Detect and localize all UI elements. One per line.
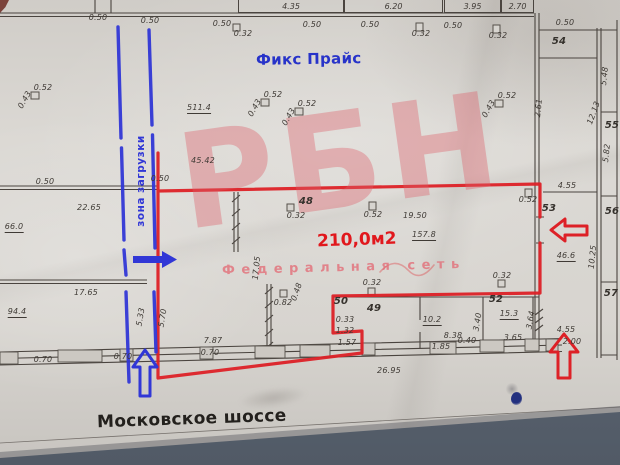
top-dimension-box: 4.35	[238, 0, 344, 13]
store-name-label: Фикс Прайс	[256, 49, 362, 69]
facade-piers	[0, 339, 558, 364]
top-dimension-box: 6.20	[344, 0, 443, 13]
top-dimension-box: 2.70	[501, 0, 534, 13]
blue-arrow-up	[133, 350, 157, 396]
blue-arrow-right	[133, 251, 177, 268]
floor-plan-photo: 4.35 6.20 3.95 2.70 РБН Федеральная сеть…	[0, 0, 620, 465]
red-arrow-left	[551, 219, 587, 241]
premises-area-label: 210,0м2	[317, 229, 397, 252]
top-dimension-value: 2.70	[509, 2, 527, 11]
ink-blot	[511, 392, 522, 405]
top-dimension-value: 4.35	[282, 2, 300, 11]
top-dimension-value: 6.20	[385, 2, 403, 11]
loading-zone-label: зона загрузки	[135, 135, 147, 226]
top-dimension-value: 3.95	[464, 2, 482, 11]
top-dimension-box: 3.95	[444, 0, 501, 13]
